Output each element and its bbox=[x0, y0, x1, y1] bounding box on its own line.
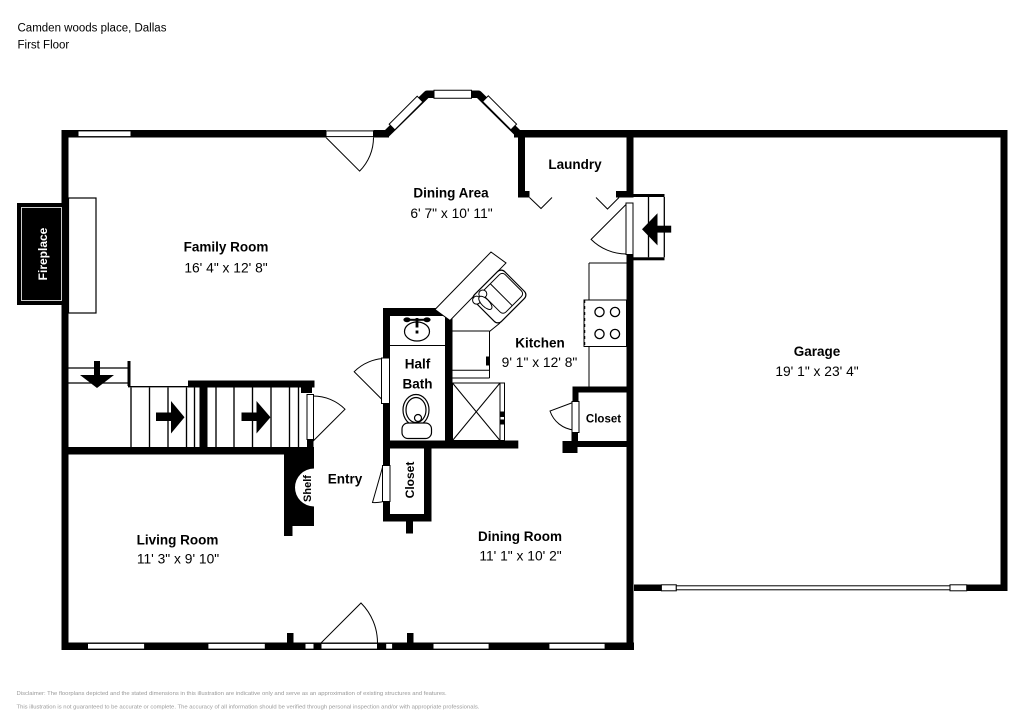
svg-text:19' 1" x 23' 4": 19' 1" x 23' 4" bbox=[775, 364, 858, 379]
svg-text:Shelf: Shelf bbox=[302, 475, 314, 502]
svg-text:9' 1" x 12' 8": 9' 1" x 12' 8" bbox=[502, 355, 578, 370]
svg-text:Garage: Garage bbox=[794, 344, 841, 359]
svg-text:Dining Room: Dining Room bbox=[478, 529, 562, 544]
svg-text:11' 3" x 9' 10": 11' 3" x 9' 10" bbox=[137, 552, 219, 567]
svg-text:This illustration is not guara: This illustration is not guaranteed to b… bbox=[17, 705, 480, 711]
svg-text:Fireplace: Fireplace bbox=[36, 227, 50, 280]
svg-text:Closet: Closet bbox=[403, 462, 417, 499]
svg-text:Family Room: Family Room bbox=[184, 240, 269, 255]
svg-text:Entry: Entry bbox=[328, 472, 363, 487]
svg-text:11' 1" x 10' 2": 11' 1" x 10' 2" bbox=[479, 549, 561, 564]
svg-text:Disclaimer: The floorplans dep: Disclaimer: The floorplans depicted and … bbox=[17, 691, 448, 697]
svg-text:Half: Half bbox=[405, 357, 431, 372]
svg-text:Living Room: Living Room bbox=[137, 533, 219, 548]
svg-text:16' 4" x 12' 8": 16' 4" x 12' 8" bbox=[184, 261, 267, 276]
svg-text:Dining Area: Dining Area bbox=[413, 186, 489, 201]
svg-text:Closet: Closet bbox=[586, 414, 621, 426]
svg-text:6' 7" x 10' 11": 6' 7" x 10' 11" bbox=[410, 206, 492, 221]
svg-text:Laundry: Laundry bbox=[548, 157, 602, 172]
svg-text:Kitchen: Kitchen bbox=[515, 336, 565, 351]
svg-text:Bath: Bath bbox=[403, 377, 433, 392]
svg-text:First Floor: First Floor bbox=[18, 40, 70, 52]
svg-text:Camden woods place, Dallas: Camden woods place, Dallas bbox=[18, 23, 167, 35]
